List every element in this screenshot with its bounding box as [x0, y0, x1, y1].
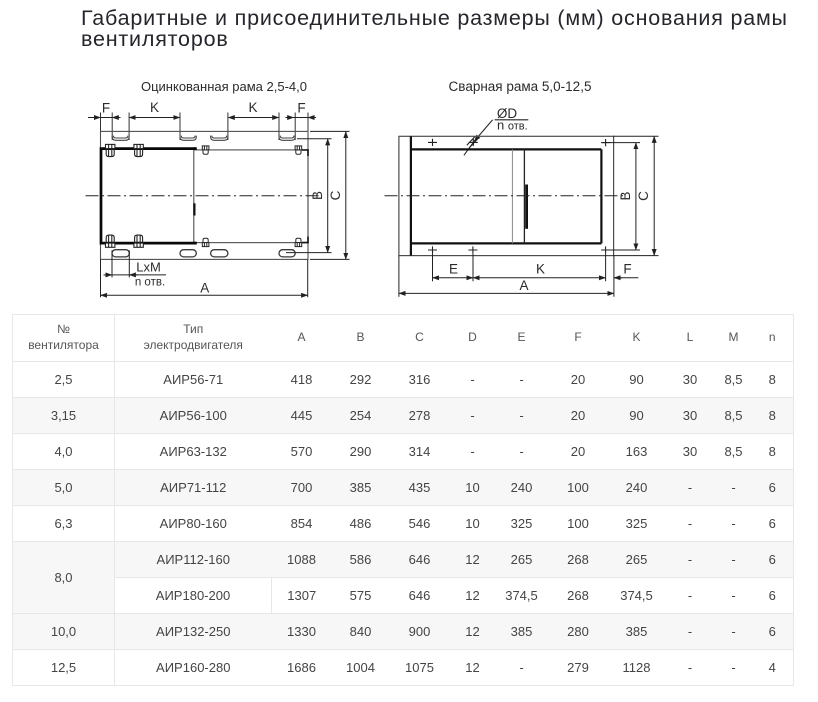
svg-text:F: F — [623, 262, 631, 277]
svg-text:K: K — [248, 100, 257, 115]
svg-text:n отв.: n отв. — [497, 118, 528, 133]
svg-text:K: K — [536, 262, 545, 277]
svg-text:C: C — [636, 191, 651, 201]
svg-text:F: F — [297, 101, 305, 116]
svg-text:K: K — [150, 100, 159, 115]
svg-text:F: F — [102, 101, 110, 116]
svg-text:A: A — [519, 278, 528, 293]
svg-text:A: A — [200, 281, 209, 296]
svg-text:C: C — [328, 190, 343, 200]
svg-text:B: B — [310, 191, 325, 200]
svg-text:Оцинкованная рама 2,5-4,0: Оцинкованная рама 2,5-4,0 — [141, 79, 307, 94]
svg-text:LxM: LxM — [136, 260, 161, 275]
svg-text:Сварная рама 5,0-12,5: Сварная рама 5,0-12,5 — [449, 79, 592, 94]
svg-text:E: E — [449, 262, 458, 277]
svg-text:n отв.: n отв. — [135, 277, 165, 289]
svg-text:B: B — [618, 191, 633, 200]
